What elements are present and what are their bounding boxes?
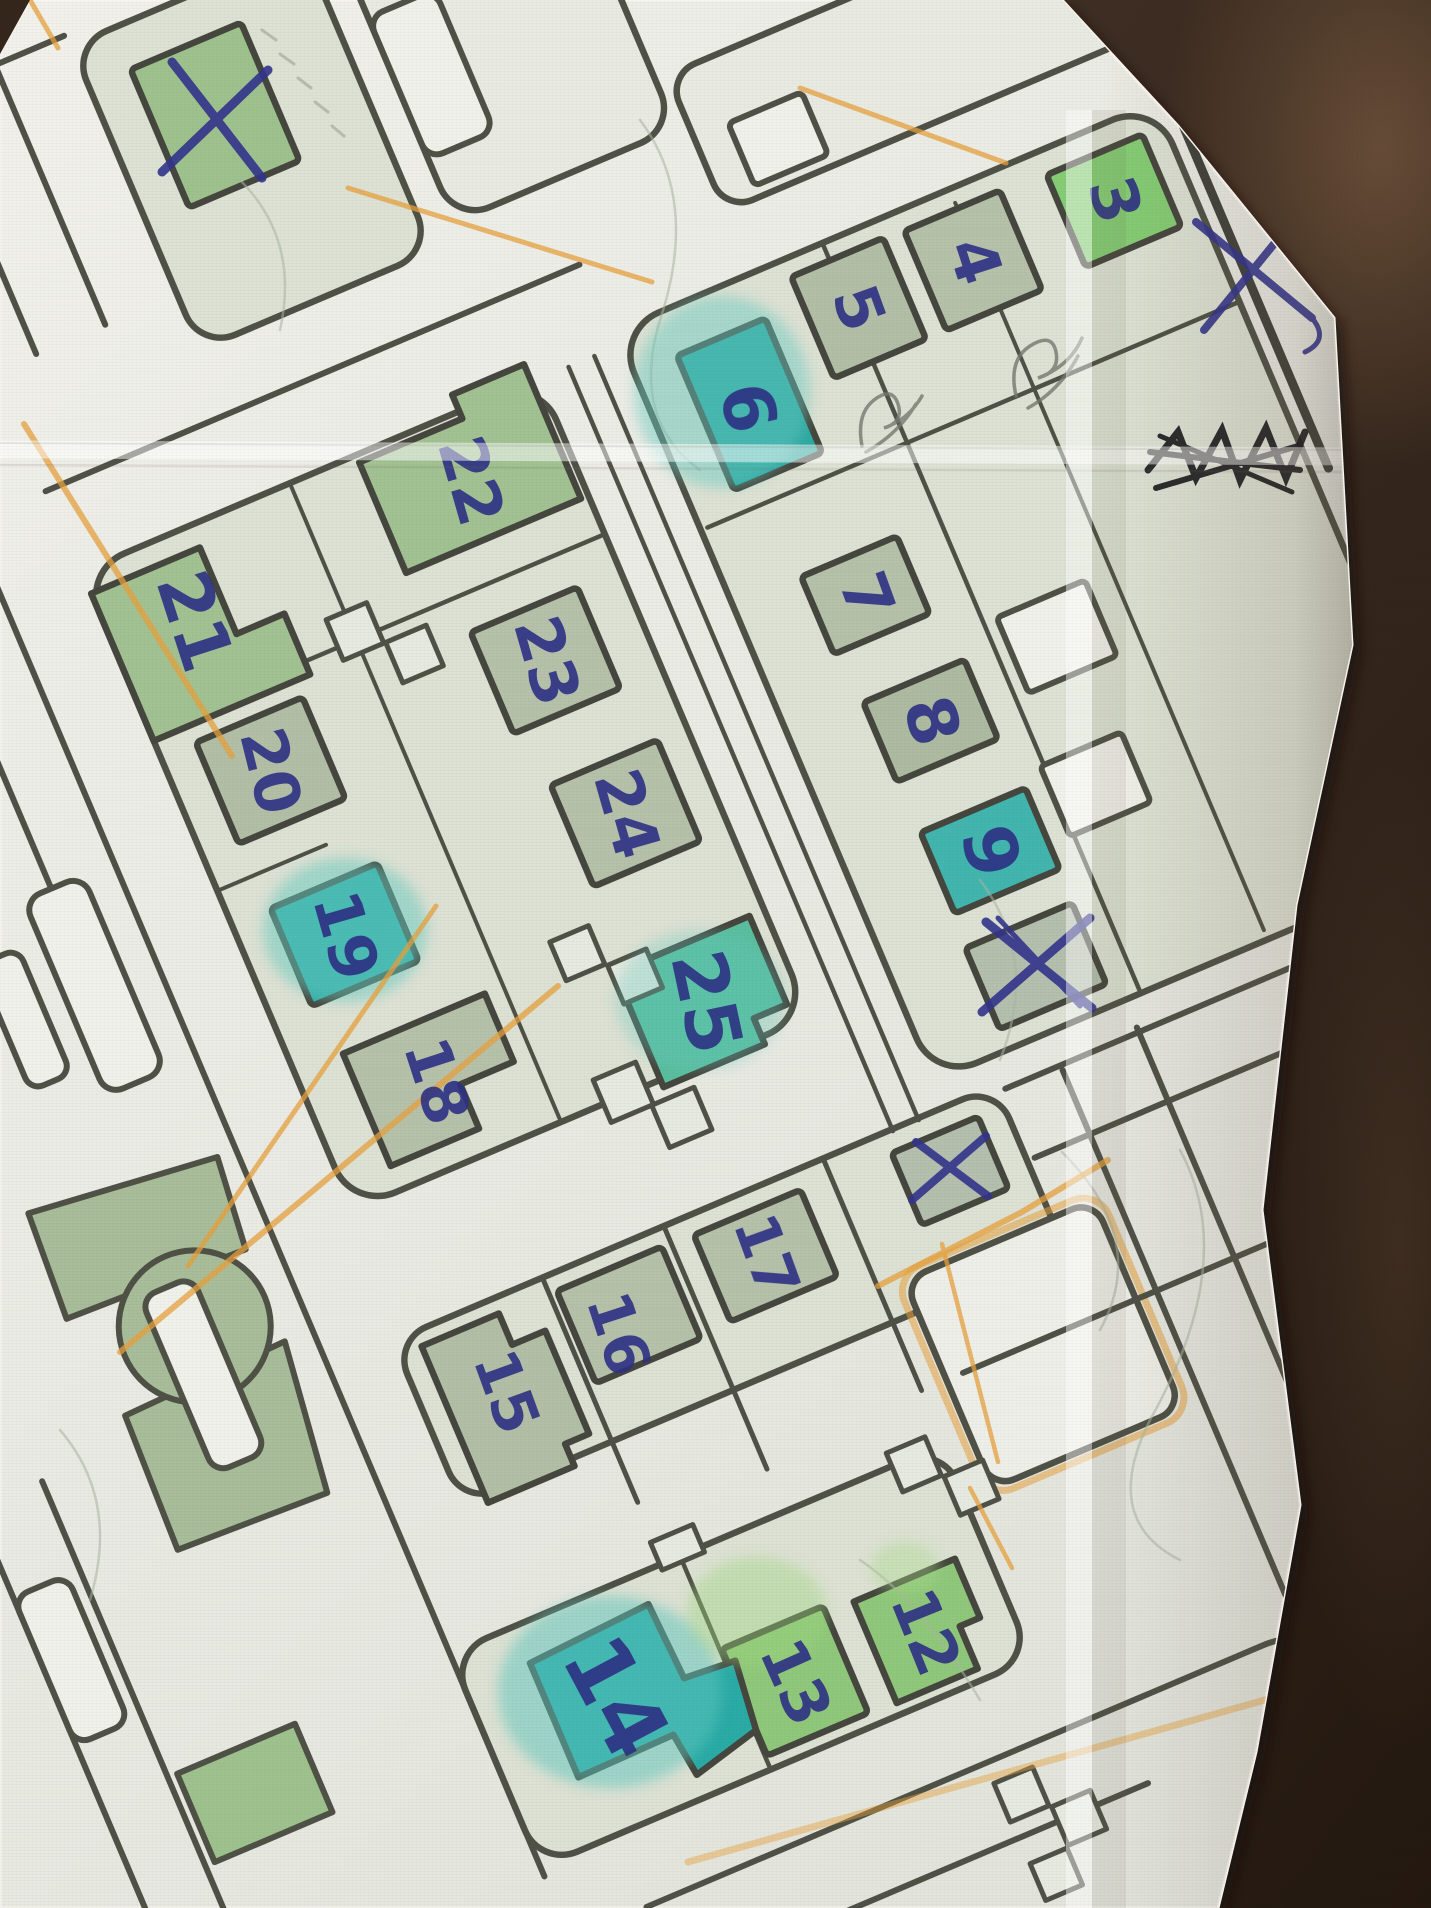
photo-annotated-paper-map: 3 4 5 6 7 8 9 12 13 14 15 16 17 18 19 20… <box>0 0 1431 1908</box>
vertical-fold-crease <box>1066 110 1092 1908</box>
